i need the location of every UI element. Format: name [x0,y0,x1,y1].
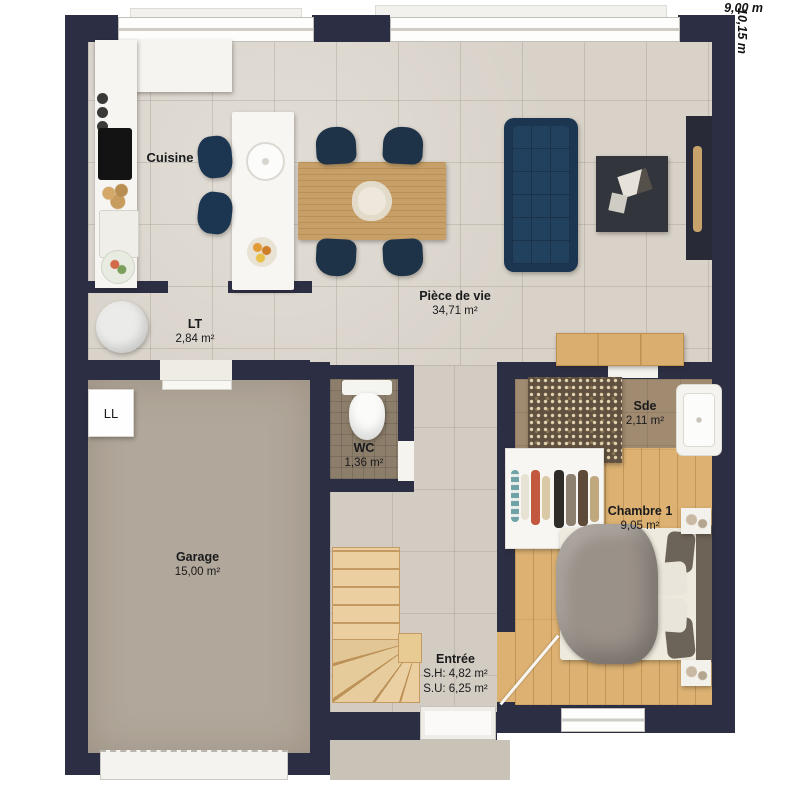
sideboard [556,333,684,366]
wall-left [65,15,88,775]
garage-sectional-door [100,750,288,780]
fruit-bowl [247,237,277,267]
washing-machine: LL [88,389,134,437]
room-area: 1,36 m² [328,456,400,471]
room-label-entree: Entrée S.H: 4,82 m² S.U: 6,25 m² [398,651,513,697]
table-centerpiece [352,181,392,221]
hanging-clothes [511,470,519,522]
room-name: LT [155,316,235,332]
tv [693,146,702,232]
hanging-clothes [566,474,576,526]
room-name: Entrée [398,651,513,667]
room-label-cuisine: Cuisine [115,150,225,167]
pillow [656,597,688,633]
living-window [390,17,680,42]
room-name: Sde [600,398,690,414]
hanging-clothes [542,476,550,520]
room-area: 15,00 m² [145,565,250,580]
dining-chair [315,238,357,277]
room-name: Garage [145,549,250,565]
lt-garage-door-opening [160,360,232,380]
room-area-sh: S.H: 4,82 m² [398,667,513,682]
food-plate [101,250,135,284]
nightstand [681,660,711,686]
wc-door [398,441,414,481]
toilet-bowl [349,393,385,440]
room-label-wc: WC 1,36 m² [328,440,400,471]
room-label-garage: Garage 15,00 m² [145,549,250,580]
front-door [420,706,496,740]
room-area: 2,11 m² [600,414,690,429]
sofa-cushions [512,126,570,264]
dimension-height: 10,15 m [735,8,749,88]
hanging-clothes [531,470,540,525]
kitchen-plant [98,182,134,210]
lt-garage-door-leaf [162,380,232,390]
room-name: Pièce de vie [390,288,520,304]
bed-headboard [696,524,712,664]
floor-plan: LL Cuisine Pièce de vie 34,71 m² LT 2,84… [0,0,800,800]
stove-knob [97,107,108,118]
room-label-lt: LT 2,84 m² [155,316,235,347]
room-name: Chambre 1 [585,503,695,519]
room-name: Cuisine [115,150,225,167]
room-name: WC [328,440,400,456]
room-area: 34,71 m² [390,304,520,319]
stairs-straight-flight [332,547,400,641]
dining-chair [382,126,424,165]
water-heater [96,301,148,353]
hanging-clothes [554,470,564,528]
room-label-chambre1: Chambre 1 9,05 m² [585,503,695,534]
island-sink [246,142,285,181]
wall-wc-right [398,365,414,443]
room-area: 9,05 m² [585,519,695,534]
pillow [656,561,689,597]
wall-garage-right [310,362,330,775]
kitchen-window [118,17,314,42]
duvet [556,524,658,664]
porch-floor [330,740,510,780]
dimension-width: 9,00 m [690,1,763,15]
room-area-su: S.U: 6,25 m² [398,682,513,697]
bedroom-window [561,708,645,732]
room-label-sde: Sde 2,11 m² [600,398,690,429]
hanging-clothes [521,474,529,520]
wall-top-middle [312,15,390,42]
washing-machine-label: LL [104,406,118,421]
room-area: 2,84 m² [155,332,235,347]
stove-knob [97,93,108,104]
dining-chair [315,126,357,165]
room-label-piece-de-vie: Pièce de vie 34,71 m² [390,288,520,319]
